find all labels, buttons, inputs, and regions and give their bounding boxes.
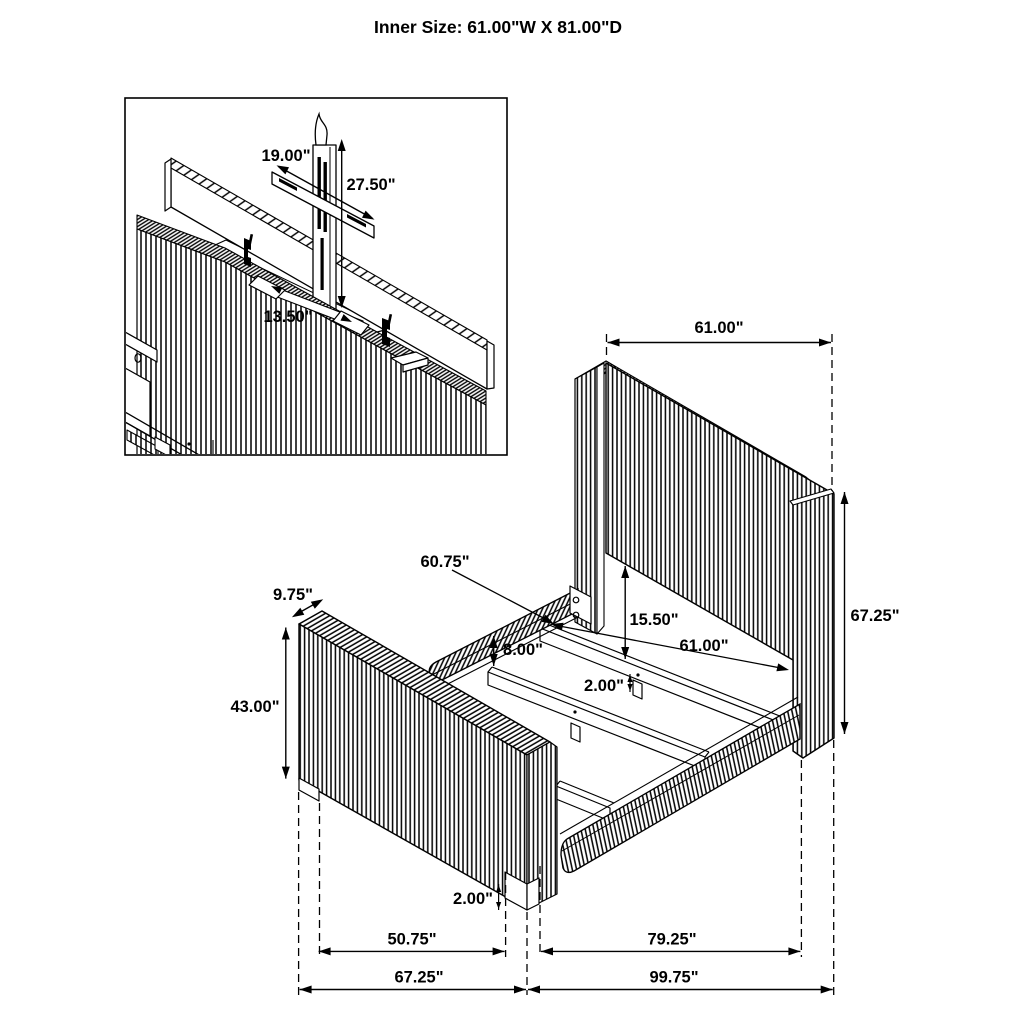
svg-text:Inner Size: 61.00"W X 81.00"D: Inner Size: 61.00"W X 81.00"D: [374, 17, 622, 37]
svg-text:67.25": 67.25": [850, 607, 899, 625]
svg-text:8.00": 8.00": [503, 641, 543, 659]
svg-text:61.00": 61.00": [694, 319, 743, 337]
svg-text:43.00": 43.00": [230, 698, 279, 716]
svg-text:60.75": 60.75": [420, 553, 469, 571]
svg-text:13.50": 13.50": [263, 308, 312, 326]
svg-text:50.75": 50.75": [387, 931, 436, 949]
svg-text:2.00": 2.00": [584, 677, 624, 695]
svg-text:79.25": 79.25": [647, 931, 696, 949]
svg-text:27.50": 27.50": [346, 176, 395, 194]
svg-text:19.00": 19.00": [261, 147, 310, 165]
svg-text:2.00": 2.00": [453, 890, 493, 908]
svg-text:61.00": 61.00": [679, 637, 728, 655]
svg-text:9.75": 9.75": [273, 586, 313, 604]
svg-text:67.25": 67.25": [394, 969, 443, 987]
svg-text:99.75": 99.75": [649, 969, 698, 987]
svg-text:15.50": 15.50": [629, 611, 678, 629]
